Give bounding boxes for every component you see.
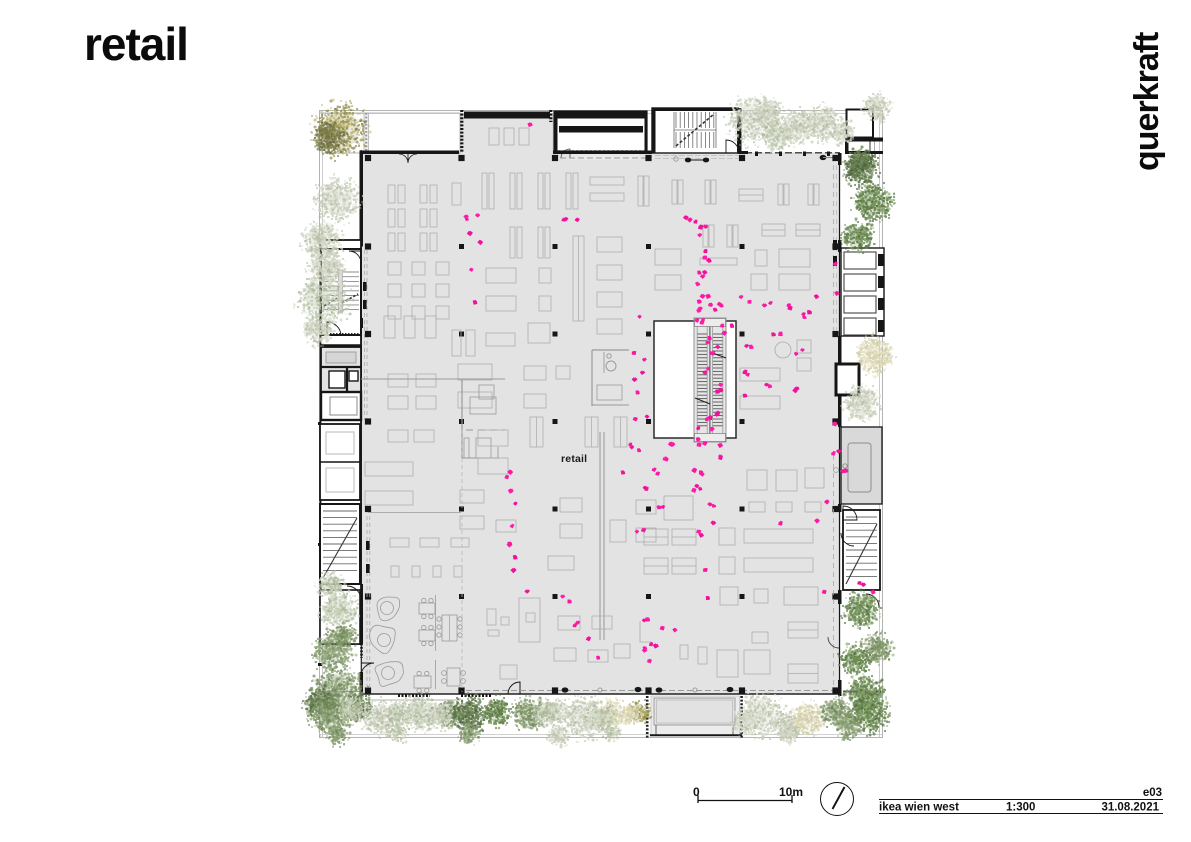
svg-text:1:300: 1:300 [1006, 802, 1035, 814]
svg-text:querkraft: querkraft [1128, 32, 1166, 171]
svg-text:retail: retail [561, 453, 587, 465]
svg-text:e03: e03 [1143, 787, 1162, 799]
svg-text:31.08.2021: 31.08.2021 [1101, 802, 1159, 814]
svg-text:ikea wien west: ikea wien west [879, 802, 959, 814]
svg-text:10m: 10m [779, 785, 803, 799]
svg-text:0: 0 [693, 785, 700, 799]
svg-text:retail: retail [84, 18, 188, 70]
